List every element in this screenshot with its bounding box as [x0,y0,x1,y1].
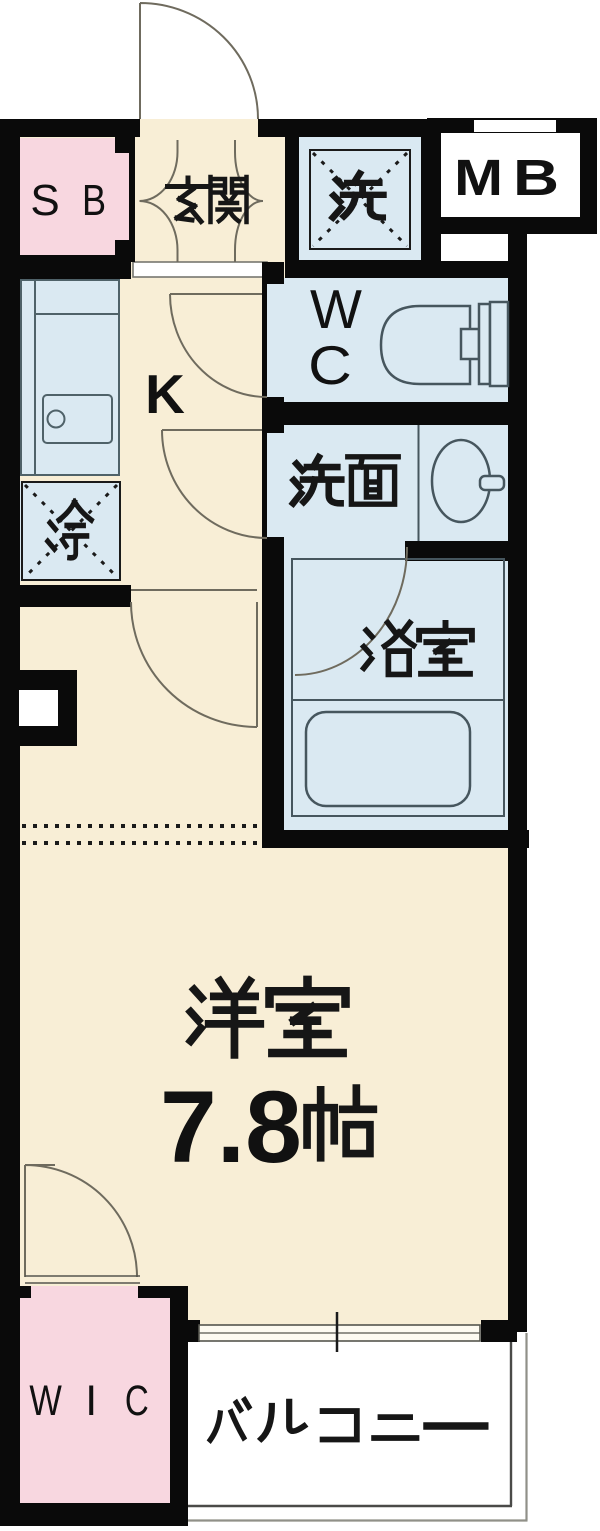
svg-text:M: M [454,149,503,207]
svg-text:S: S [30,176,59,225]
svg-text:7.8: 7.8 [160,1070,302,1184]
svg-text:W: W [29,1377,62,1424]
svg-text:W: W [310,278,362,340]
svg-text:C: C [125,1377,149,1425]
svg-text:B: B [82,176,106,225]
svg-text:C: C [308,335,352,396]
svg-text:B: B [513,150,559,207]
svg-text:K: K [145,363,185,425]
svg-text:I: I [85,1377,97,1425]
